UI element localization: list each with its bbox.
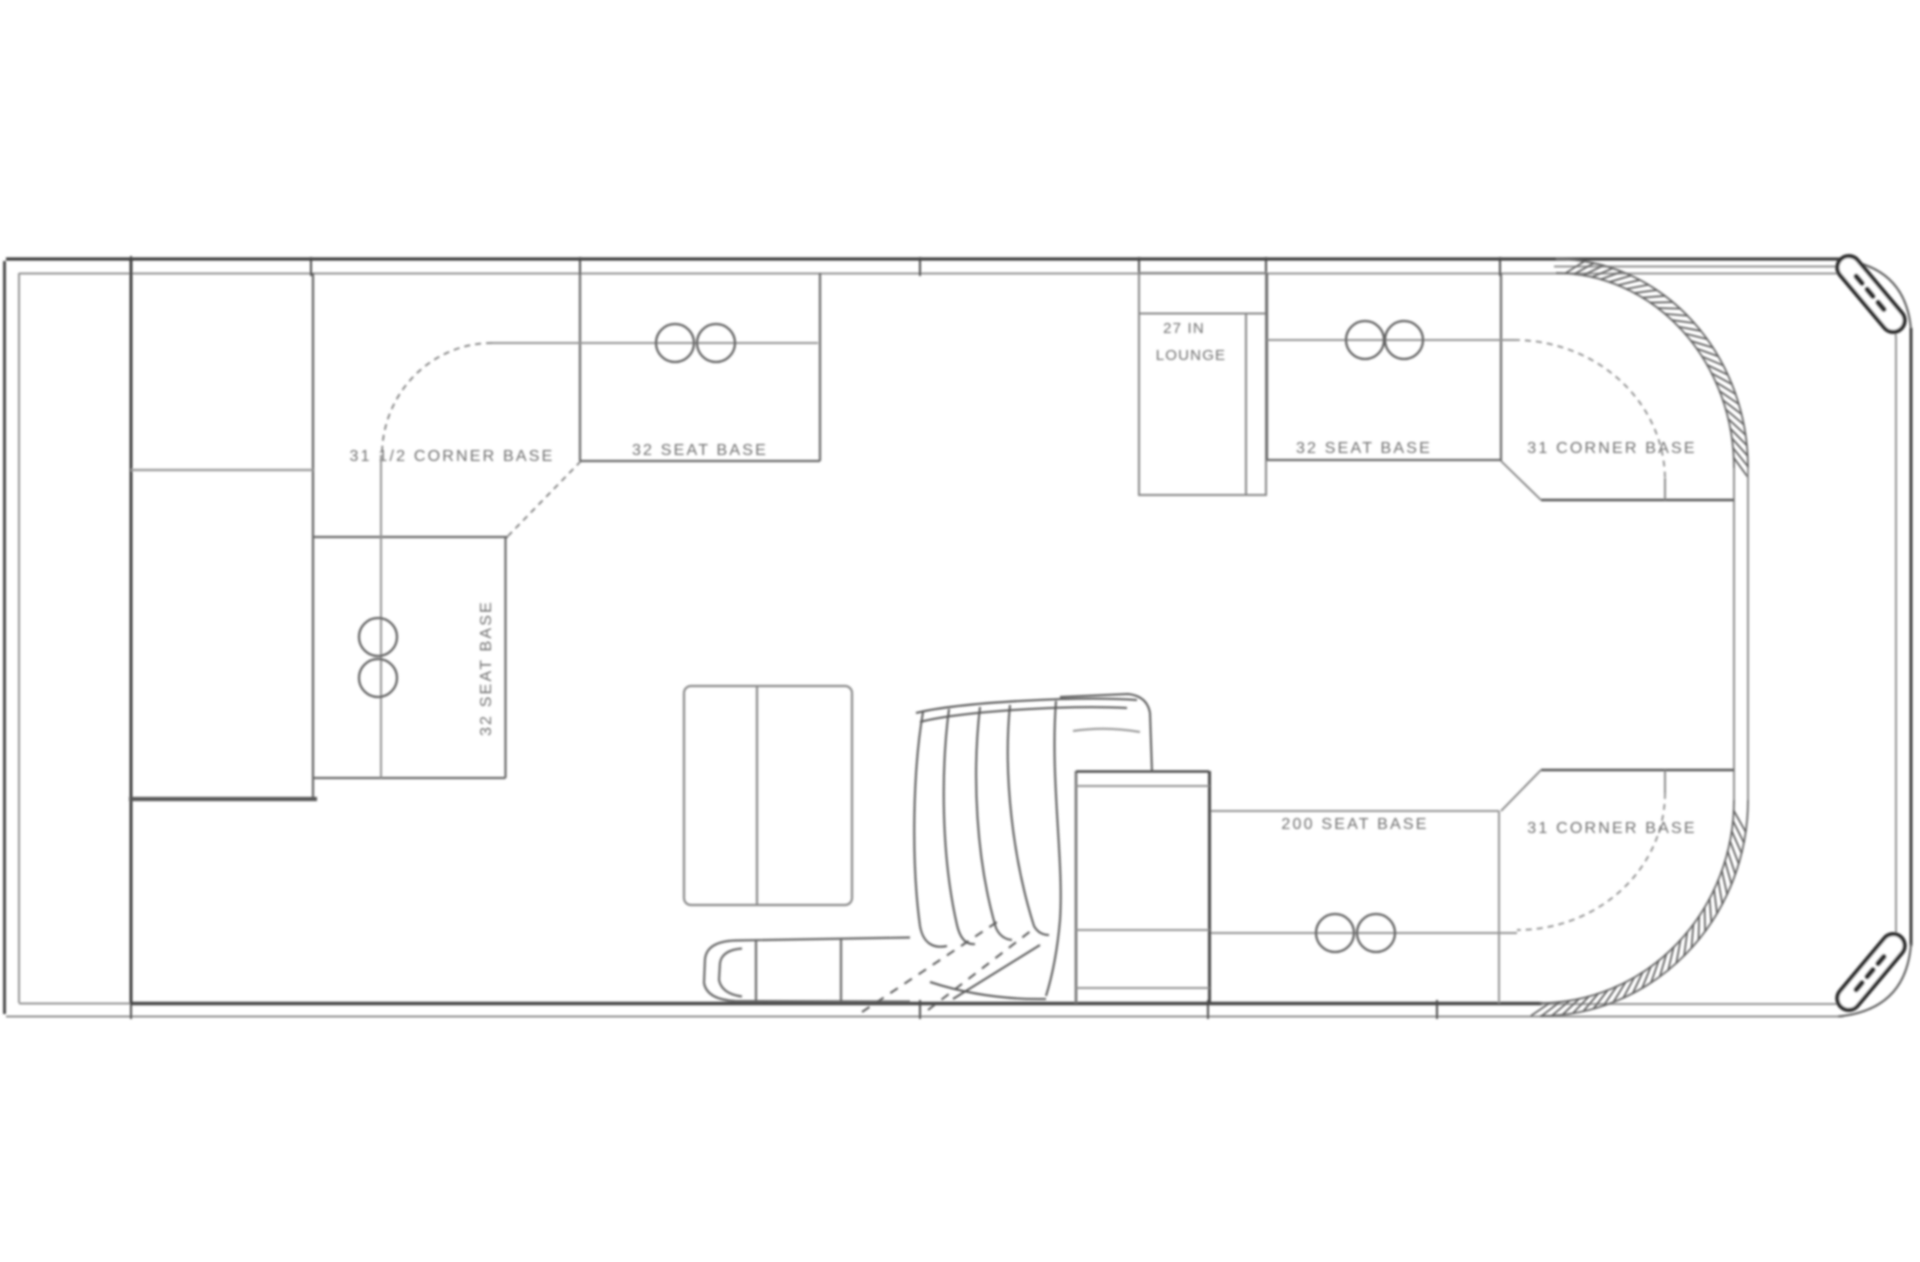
svg-text:31 CORNER BASE: 31 CORNER BASE: [1527, 440, 1697, 457]
svg-text:LOUNGE: LOUNGE: [1156, 347, 1227, 364]
svg-text:200 SEAT BASE: 200 SEAT BASE: [1281, 816, 1428, 833]
svg-text:32 SEAT BASE: 32 SEAT BASE: [478, 600, 495, 736]
svg-text:31 CORNER BASE: 31 CORNER BASE: [1527, 820, 1697, 837]
svg-text:27 IN: 27 IN: [1163, 320, 1205, 337]
svg-text:32 SEAT BASE: 32 SEAT BASE: [1296, 440, 1432, 457]
svg-text:32 SEAT BASE: 32 SEAT BASE: [632, 442, 768, 459]
